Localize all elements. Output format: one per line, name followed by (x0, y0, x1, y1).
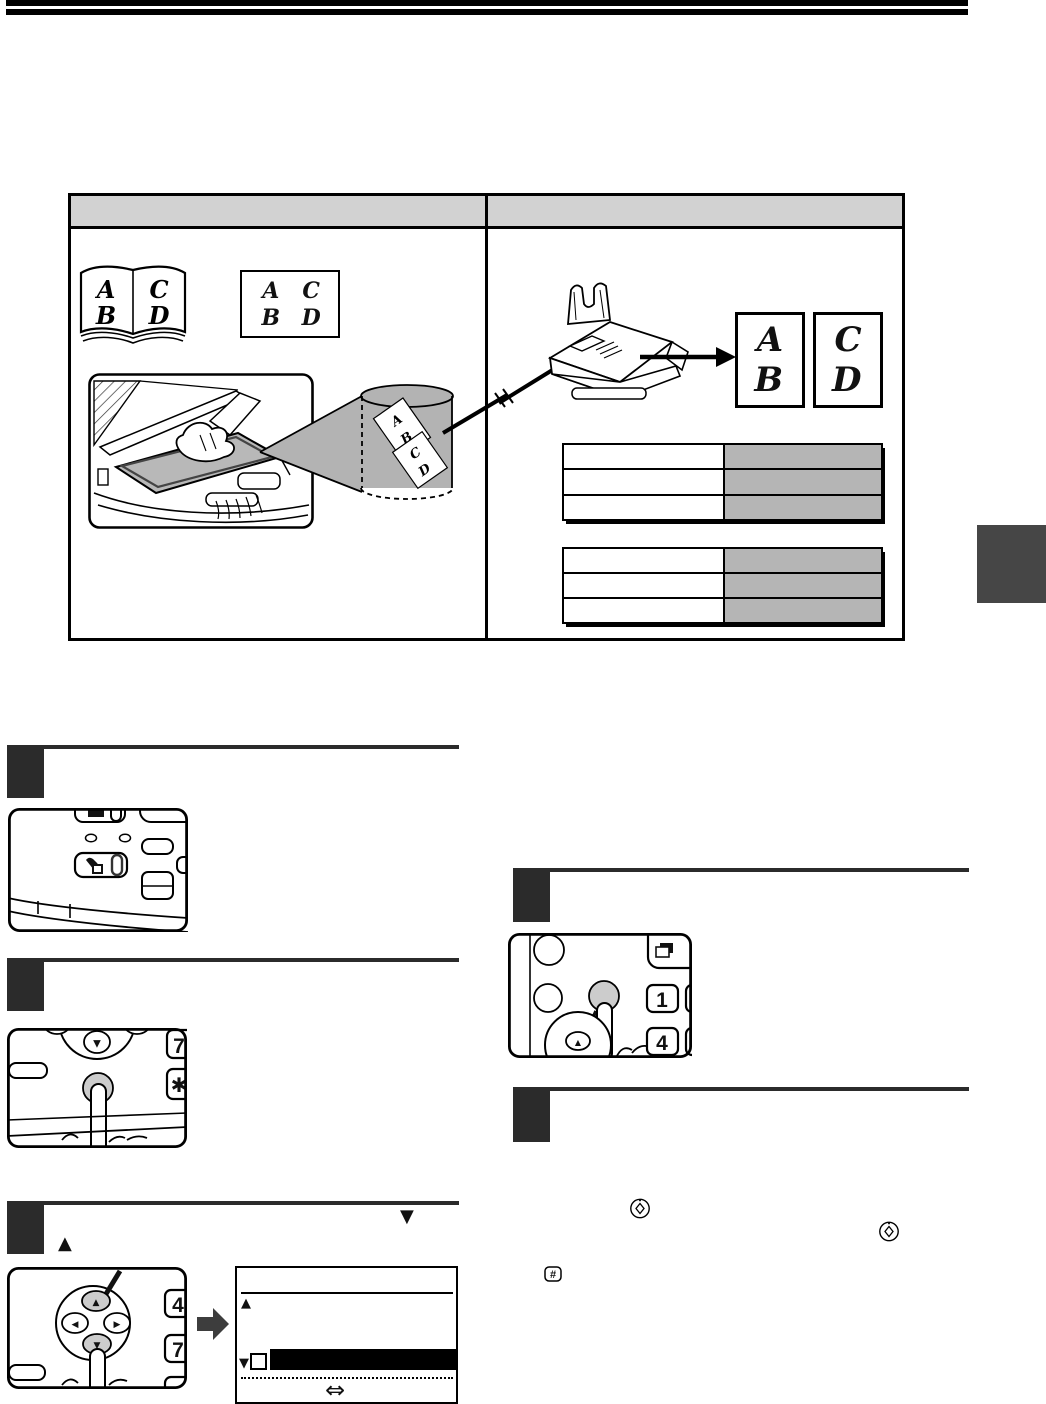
manual-page: A B C D A C B D (0, 0, 1046, 1404)
round-key (534, 935, 564, 965)
step-5-rule (513, 1087, 969, 1091)
output-arrow (638, 344, 738, 370)
lcd-up-glyph: ▲ (241, 1296, 251, 1311)
led-indicator (86, 834, 97, 842)
output-page-1: A B (735, 312, 805, 408)
step-3-heading-up-glyph: ▲ (58, 1235, 72, 1253)
lcd-selection-bar (270, 1349, 458, 1370)
spec-label-cell (564, 470, 723, 493)
step-2-panel-illustration: ▼ 7 ✱ (7, 1028, 187, 1148)
header-rule-secondary (6, 9, 968, 15)
lcd-top-rule (241, 1292, 453, 1294)
output1-letter-b: B (754, 360, 783, 400)
step-4-marker (513, 868, 550, 922)
step-4-panel-illustration: ▲ 1 4 (508, 933, 692, 1058)
spec-value-cell (723, 470, 881, 493)
step-4-rule (513, 868, 969, 872)
round-key (534, 984, 562, 1012)
nav-left-glyph: ◀ (72, 1320, 79, 1330)
spec-label-cell (564, 599, 723, 622)
nav-right-glyph: ▶ (114, 1320, 121, 1330)
step-2-rule (7, 958, 459, 962)
fax-machine-illustration (536, 280, 696, 405)
spec-label-cell (564, 496, 723, 519)
step-5-marker (513, 1087, 550, 1142)
panel-left-key (9, 1365, 45, 1380)
lcd-down-glyph: ▼ (239, 1356, 249, 1371)
spec-table-2-row (564, 574, 881, 599)
book-letter-c: C (149, 275, 168, 304)
step-1-marker (7, 745, 44, 798)
comparison-header-left (71, 196, 487, 226)
block-arrow (197, 1308, 229, 1340)
copy-sheet: A C B D (240, 270, 340, 338)
spec-table-2 (562, 547, 883, 624)
book-illustration: A B C D (76, 260, 190, 352)
spec-label-cell (564, 574, 723, 597)
start-key-icon (878, 1220, 900, 1242)
output-page-2: C D (813, 312, 883, 408)
led-indicator (120, 834, 131, 842)
sheet-letter-d: D (302, 305, 321, 331)
lcd-checkbox (250, 1353, 267, 1370)
spec-table-1-row (564, 470, 881, 495)
spec-value-cell (723, 599, 881, 622)
spec-table-2-row (564, 599, 881, 622)
spec-table-1-row (564, 445, 881, 470)
nav-up-glyph: ▲ (575, 1038, 582, 1047)
comparison-header-right (487, 196, 903, 226)
chapter-side-tab (977, 525, 1046, 603)
key-7-label: 7 (172, 1339, 184, 1362)
step-3-panel-illustration: ▲ ◀ ▶ ▼ 4 7 (7, 1267, 187, 1389)
step-1-rule (7, 745, 459, 749)
output1-letter-a: A (757, 320, 783, 360)
key-4-label: 4 (172, 1294, 184, 1317)
callout-line (106, 1271, 120, 1294)
step-2-marker (7, 958, 44, 1011)
step-3-marker (7, 1201, 44, 1254)
book-letter-b: B (95, 301, 116, 330)
key-1-label: 1 (656, 989, 668, 1012)
key-4-label: 4 (656, 1032, 668, 1055)
hash-key-label: # (550, 1269, 556, 1281)
spec-value-cell (723, 574, 881, 597)
sheet-letter-c: C (302, 278, 320, 304)
output2-letter-d: D (832, 360, 861, 400)
sheet-letter-b: B (261, 305, 280, 331)
spec-table-1 (562, 443, 883, 521)
spec-value-cell (723, 445, 881, 468)
step-1-panel-illustration (8, 808, 188, 932)
panel-left-key (9, 1063, 47, 1078)
book-letter-a: A (95, 275, 116, 304)
spec-label-cell (564, 445, 723, 468)
lcd-display: ▲ ▼ ⇔ (235, 1266, 458, 1404)
finger (90, 1349, 105, 1389)
lcd-double-arrow-glyph: ⇔ (325, 1376, 345, 1404)
key-7-label: 7 (173, 1035, 185, 1058)
spec-table-2-row (564, 549, 881, 574)
spec-table-1-row (564, 496, 881, 519)
step-3-heading-down-glyph: ▼ (400, 1208, 414, 1226)
spec-value-cell (723, 549, 881, 572)
header-rule-primary (6, 0, 968, 6)
lcd-dotted-rule (241, 1377, 453, 1379)
sheet-letter-a: A (262, 278, 279, 304)
nav-down-glyph: ▼ (93, 1039, 101, 1050)
hash-key-icon: # (544, 1266, 562, 1282)
spec-value-cell (723, 496, 881, 519)
step-3-rule (7, 1201, 459, 1205)
spec-label-cell (564, 549, 723, 572)
nav-up-glyph: ▲ (93, 1298, 100, 1308)
output2-letter-c: C (834, 320, 861, 360)
book-letter-d: D (148, 301, 170, 330)
start-key-icon (629, 1197, 651, 1219)
